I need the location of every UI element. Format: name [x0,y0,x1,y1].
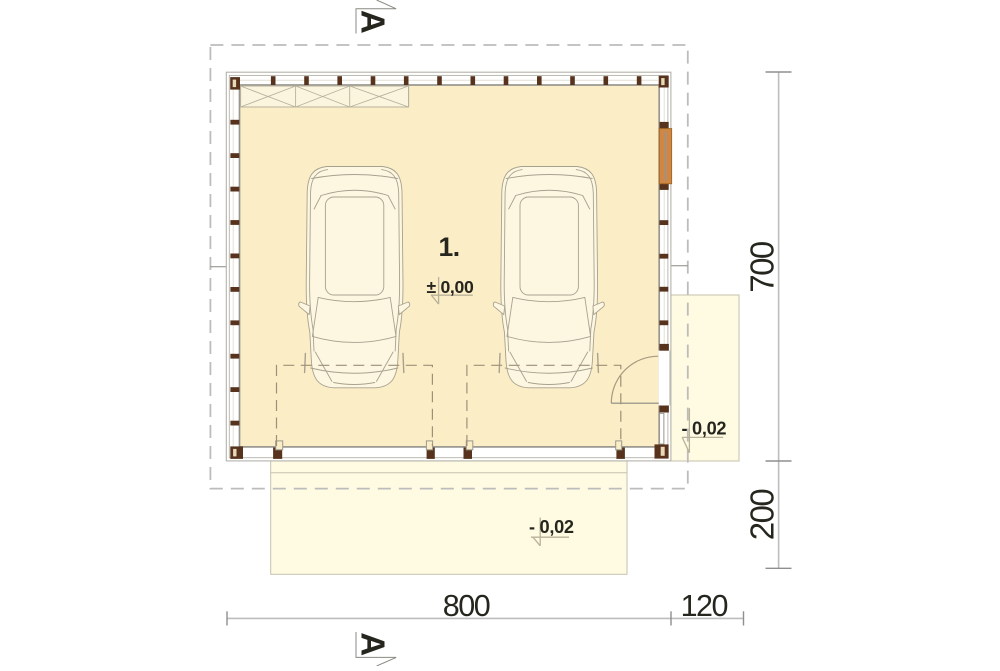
svg-text:A: A [355,10,392,34]
svg-text:1.: 1. [439,232,460,262]
svg-text:120: 120 [681,589,728,623]
svg-text:200: 200 [744,489,781,541]
svg-text:- 0,02: - 0,02 [682,419,727,439]
svg-text:700: 700 [744,241,781,293]
svg-text:- 0,02: - 0,02 [529,517,574,537]
svg-text:± 0,00: ± 0,00 [427,277,475,297]
svg-text:800: 800 [443,589,490,623]
svg-text:A: A [355,632,392,656]
